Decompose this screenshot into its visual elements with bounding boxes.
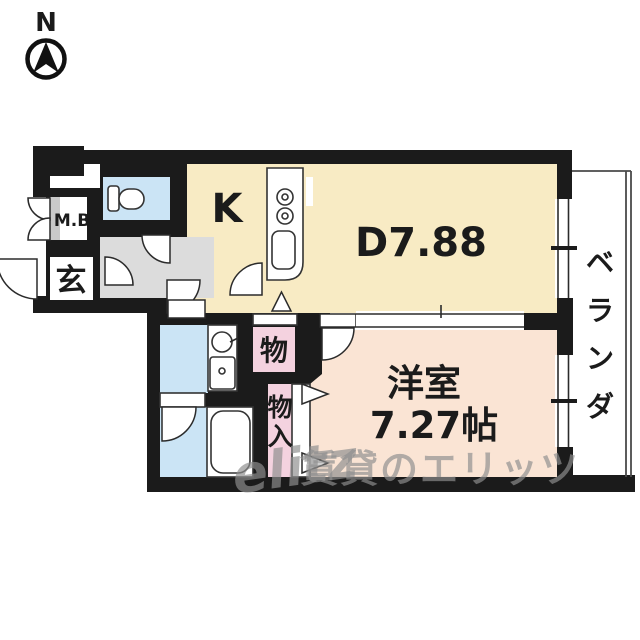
- label-meter-box: M.B: [54, 211, 90, 231]
- label-storage: 物: [260, 334, 288, 367]
- counter-wall-slot: [306, 177, 313, 206]
- meter-box-door-arc: [28, 218, 50, 240]
- compass-north-label: N: [35, 8, 57, 38]
- watermark-text: 賃貸のエリッツ: [299, 447, 580, 491]
- label-dining: D7.88: [355, 220, 487, 266]
- meter-box-door-arc: [28, 198, 50, 220]
- compass: N: [28, 8, 65, 78]
- washing-machine-dot: [219, 368, 225, 374]
- washroom-floor: [160, 325, 208, 393]
- bath-door-gap: [160, 393, 205, 407]
- storage-door: [253, 314, 297, 325]
- toilet-icon: [108, 186, 144, 211]
- label-western-room-size: 7.27帖: [370, 404, 498, 447]
- floor-plan-page: N: [0, 0, 640, 640]
- washbasin-sink: [212, 332, 232, 352]
- label-veranda: ベランダ: [586, 246, 614, 423]
- label-kitchen: K: [212, 186, 245, 232]
- kitchen-sink: [272, 231, 295, 269]
- western-room-door-leaf: [320, 314, 356, 327]
- label-entrance: 玄: [56, 263, 87, 299]
- floor-plan: N: [0, 0, 640, 640]
- washroom-door: [168, 300, 205, 318]
- entrance-door-arc: [0, 259, 37, 299]
- label-western-room: 洋室: [387, 362, 461, 405]
